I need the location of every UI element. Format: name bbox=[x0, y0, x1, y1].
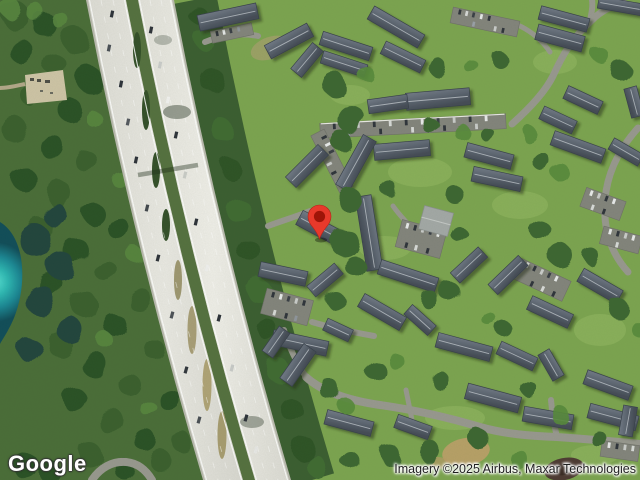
map-attribution: Imagery ©2025 Airbus, Maxar Technologies bbox=[394, 463, 636, 476]
google-logo[interactable]: Google bbox=[8, 453, 87, 475]
map-canvas[interactable]: Google Imagery ©2025 Airbus, Maxar Techn… bbox=[0, 0, 640, 480]
satellite-imagery bbox=[0, 0, 640, 480]
